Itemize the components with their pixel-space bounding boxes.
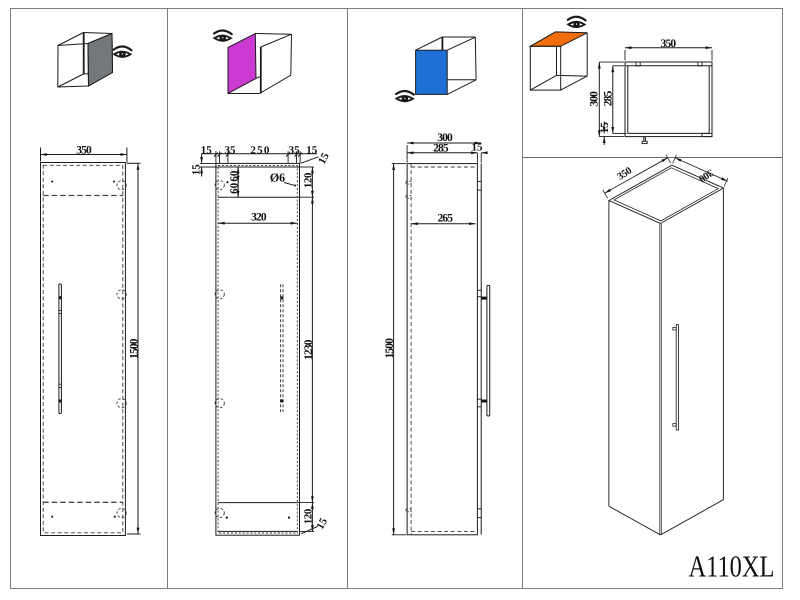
- svg-text:120: 120: [302, 172, 314, 188]
- svg-text:15: 15: [306, 145, 318, 157]
- svg-text:60: 60: [228, 170, 240, 182]
- svg-text:60: 60: [228, 182, 240, 194]
- svg-text:15: 15: [472, 142, 484, 154]
- svg-text:300: 300: [589, 91, 601, 107]
- svg-text:1500: 1500: [128, 338, 140, 359]
- svg-text:120: 120: [302, 508, 314, 524]
- svg-text:A110XL: A110XL: [689, 550, 775, 584]
- svg-text:320: 320: [251, 212, 267, 224]
- svg-text:250: 250: [250, 145, 270, 157]
- svg-text:15: 15: [190, 164, 202, 176]
- svg-text:Ø6: Ø6: [270, 171, 285, 185]
- svg-text:15: 15: [201, 145, 213, 157]
- svg-text:1500: 1500: [384, 338, 396, 359]
- svg-text:35: 35: [289, 145, 301, 157]
- svg-text:35: 35: [225, 145, 237, 157]
- svg-text:1230: 1230: [303, 339, 315, 360]
- svg-text:265: 265: [438, 213, 454, 225]
- svg-text:285: 285: [603, 91, 615, 107]
- svg-text:350: 350: [661, 38, 677, 50]
- svg-text:15: 15: [599, 122, 611, 134]
